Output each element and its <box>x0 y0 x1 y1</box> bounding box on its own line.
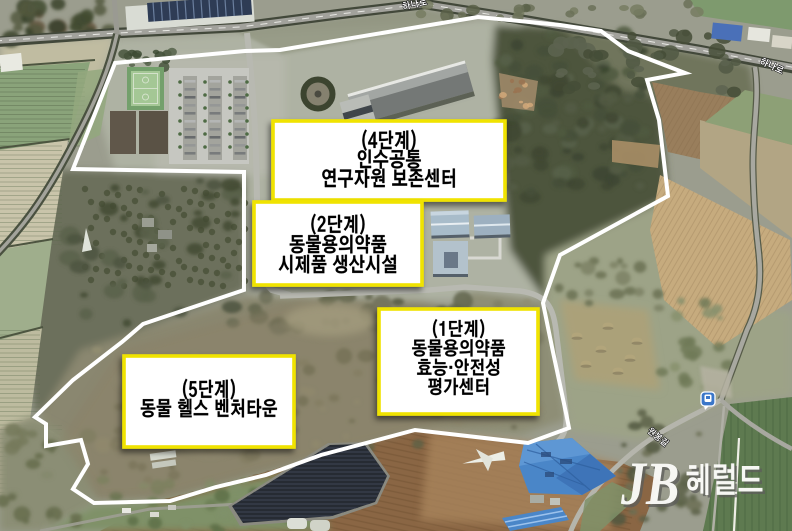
svg-text:JB: JB <box>620 450 679 518</box>
